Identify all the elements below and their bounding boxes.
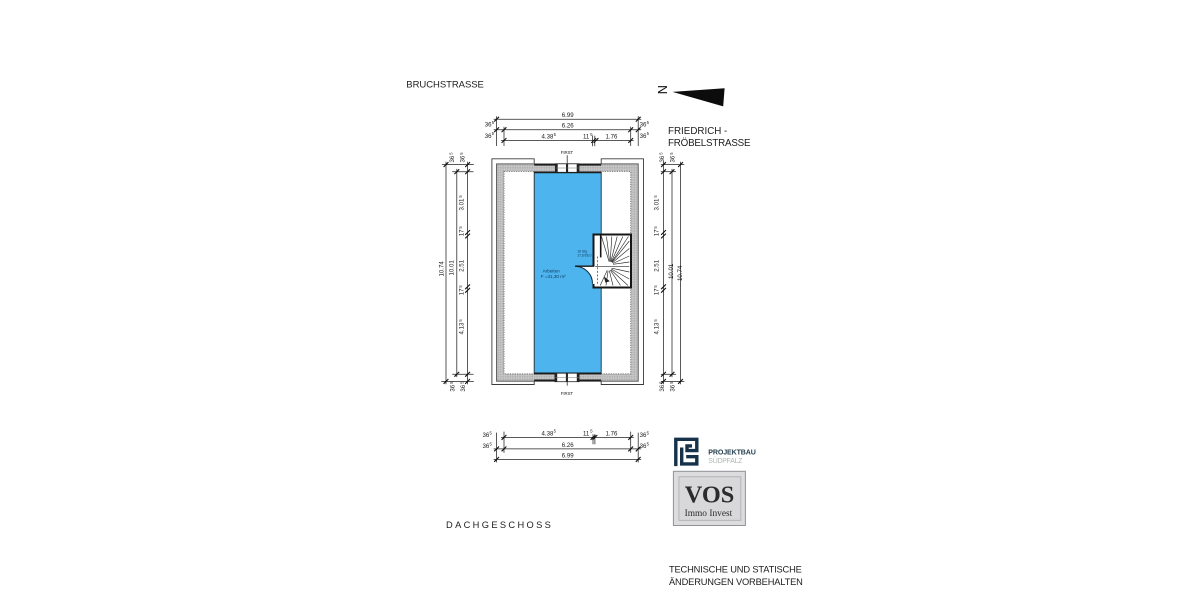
svg-text:VOS: VOS xyxy=(685,482,734,509)
svg-text:5: 5 xyxy=(647,120,650,125)
svg-text:FIRST: FIRST xyxy=(561,150,574,155)
svg-text:3.01: 3.01 xyxy=(458,198,465,210)
svg-text:17: 17 xyxy=(653,288,660,295)
svg-text:36: 36 xyxy=(449,155,456,162)
svg-text:10.01: 10.01 xyxy=(668,263,675,279)
svg-text:FRIEDRICH -: FRIEDRICH - xyxy=(668,126,727,137)
svg-text:DACHGESCHOSS: DACHGESCHOSS xyxy=(446,520,553,530)
svg-text:5: 5 xyxy=(647,441,650,446)
svg-text:5: 5 xyxy=(459,152,464,155)
svg-text:5: 5 xyxy=(458,319,463,322)
svg-text:5: 5 xyxy=(554,132,557,137)
svg-text:5: 5 xyxy=(653,195,658,198)
svg-text:17: 17 xyxy=(458,229,465,236)
svg-text:11: 11 xyxy=(583,133,590,140)
svg-text:5: 5 xyxy=(590,429,593,434)
svg-text:10.01: 10.01 xyxy=(448,260,455,276)
svg-text:10.74: 10.74 xyxy=(677,265,684,281)
svg-text:5: 5 xyxy=(458,285,463,288)
svg-text:36: 36 xyxy=(670,384,677,391)
svg-text:11: 11 xyxy=(583,430,590,437)
svg-text:17: 17 xyxy=(458,288,465,295)
svg-text:5: 5 xyxy=(647,131,650,136)
svg-text:5: 5 xyxy=(653,285,658,288)
svg-text:5: 5 xyxy=(458,195,463,198)
svg-text:PROJEKTBAU: PROJEKTBAU xyxy=(708,448,755,456)
svg-text:5: 5 xyxy=(653,319,658,322)
svg-text:36: 36 xyxy=(460,384,467,391)
svg-text:Immo Invest: Immo Invest xyxy=(685,509,733,519)
svg-text:2.51: 2.51 xyxy=(653,259,660,271)
svg-text:TECHNISCHE UND STATISCHE: TECHNISCHE UND STATISCHE xyxy=(669,564,802,574)
svg-text:6.99: 6.99 xyxy=(562,112,574,119)
svg-text:5: 5 xyxy=(449,152,454,155)
svg-text:SÜDPFALZ: SÜDPFALZ xyxy=(708,457,742,465)
svg-text:4.13: 4.13 xyxy=(458,322,465,334)
svg-text:F =31,30 m²: F =31,30 m² xyxy=(541,274,566,279)
svg-text:ÄNDERUNGEN VORBEHALTEN: ÄNDERUNGEN VORBEHALTEN xyxy=(669,577,803,587)
svg-text:BRUCHSTRASSE: BRUCHSTRASSE xyxy=(406,79,484,90)
svg-text:Arbeiten: Arbeiten xyxy=(543,268,561,273)
svg-text:36: 36 xyxy=(659,155,666,162)
svg-text:36: 36 xyxy=(670,155,677,162)
svg-text:6.99: 6.99 xyxy=(562,453,574,460)
svg-text:5: 5 xyxy=(659,152,664,155)
svg-text:5: 5 xyxy=(554,429,557,434)
svg-text:10.74: 10.74 xyxy=(439,261,446,277)
svg-text:1.76: 1.76 xyxy=(606,430,618,437)
svg-text:5: 5 xyxy=(490,441,493,446)
svg-text:6.26: 6.26 xyxy=(562,123,574,130)
svg-text:5: 5 xyxy=(669,152,674,155)
svg-text:17,6/28,0: 17,6/28,0 xyxy=(577,253,591,257)
svg-text:5: 5 xyxy=(653,226,658,229)
svg-text:36: 36 xyxy=(449,384,456,391)
svg-text:N: N xyxy=(655,85,669,94)
svg-text:6.26: 6.26 xyxy=(562,442,574,449)
svg-text:2.51: 2.51 xyxy=(458,259,465,271)
svg-text:4.38: 4.38 xyxy=(542,430,554,437)
svg-text:36: 36 xyxy=(459,155,466,162)
svg-text:4.38: 4.38 xyxy=(542,133,554,140)
svg-text:5: 5 xyxy=(458,226,463,229)
svg-text:1.76: 1.76 xyxy=(606,133,618,140)
svg-text:3.01: 3.01 xyxy=(653,198,660,210)
svg-text:FIRST: FIRST xyxy=(561,391,574,396)
svg-text:36: 36 xyxy=(659,384,666,391)
svg-text:4.13: 4.13 xyxy=(653,322,660,334)
svg-text:5: 5 xyxy=(647,431,650,436)
svg-text:5: 5 xyxy=(490,431,493,436)
svg-text:5: 5 xyxy=(492,120,495,125)
svg-text:FRÖBELSTRASSE: FRÖBELSTRASSE xyxy=(668,138,751,149)
svg-text:17: 17 xyxy=(653,229,660,236)
